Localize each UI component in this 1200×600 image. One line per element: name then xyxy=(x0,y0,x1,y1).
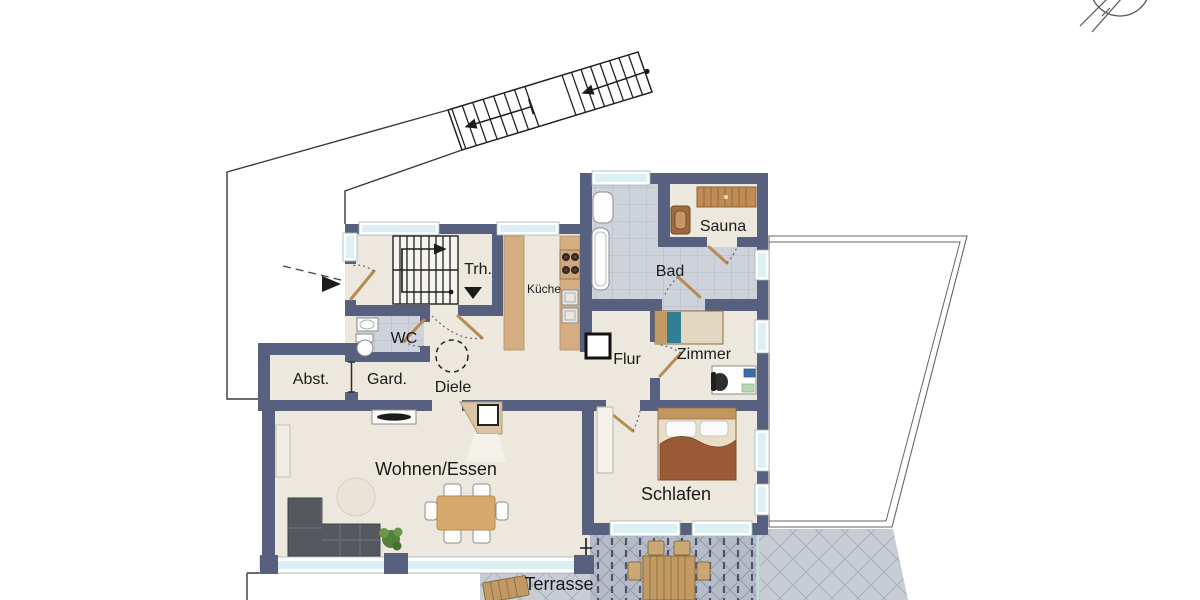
toilet xyxy=(356,334,373,356)
wc-sink xyxy=(357,318,378,331)
room-label-kueche: Küche xyxy=(527,282,561,296)
compass-fragment xyxy=(1080,0,1150,32)
room-label-wc: WC xyxy=(391,330,418,347)
window xyxy=(755,320,769,353)
wall-segment xyxy=(658,237,707,247)
window-front-post xyxy=(574,555,594,574)
wall-segment xyxy=(582,411,594,535)
terrace-chair xyxy=(674,541,690,555)
wall-segment xyxy=(258,343,270,411)
wall-segment xyxy=(658,184,670,237)
dining-table xyxy=(437,496,495,530)
window xyxy=(343,233,357,261)
window xyxy=(359,222,439,235)
boiler xyxy=(593,192,613,223)
terrace-door-post xyxy=(384,553,408,574)
roof-terrace-outline xyxy=(769,236,967,527)
room-label-terrasse: Terrasse xyxy=(524,574,593,594)
room-label-bad: Bad xyxy=(656,263,684,280)
tv-sideboard xyxy=(372,410,416,424)
room-label-diele: Diele xyxy=(435,379,472,396)
wall-segment xyxy=(345,343,358,362)
room-label-flur: Flur xyxy=(613,351,641,368)
terrace-chair xyxy=(628,562,641,580)
double-bed xyxy=(658,408,736,480)
wall-segment xyxy=(345,305,430,316)
window xyxy=(755,250,769,280)
floor-plan-page: Trh. Küche Bad Sauna WC Flur Zimmer Abst… xyxy=(0,0,1200,600)
window-front-glass xyxy=(274,561,384,569)
room-label-gard: Gard. xyxy=(367,371,407,388)
wall-segment xyxy=(345,392,358,400)
wall-segment xyxy=(420,346,430,352)
room-label-sauna: Sauna xyxy=(700,218,746,235)
stove-icon xyxy=(560,250,580,279)
entry-arrow-icon xyxy=(322,276,341,292)
wall-segment xyxy=(492,224,503,316)
window xyxy=(592,171,650,185)
window xyxy=(692,521,752,536)
window xyxy=(755,484,769,515)
external-staircase xyxy=(448,52,652,150)
kitchen-counter-left xyxy=(504,236,524,350)
round-rug xyxy=(337,478,375,516)
terrace-open-zone xyxy=(760,529,908,600)
window-front-post xyxy=(260,555,278,574)
terrace-table xyxy=(643,556,695,600)
wardrobe xyxy=(597,407,613,473)
window-front-glass xyxy=(408,561,578,569)
room-label-wohnen-essen: Wohnen/Essen xyxy=(375,459,497,479)
room-label-trh: Trh. xyxy=(464,261,492,278)
wall-segment xyxy=(258,343,358,355)
wall-segment xyxy=(262,411,275,558)
wall-segment xyxy=(258,400,432,411)
room-label-schlafen: Schlafen xyxy=(641,484,711,504)
window xyxy=(610,521,680,536)
internal-staircase xyxy=(393,236,458,304)
sauna-heater xyxy=(671,206,690,234)
wall-segment xyxy=(580,299,662,311)
window xyxy=(755,430,769,471)
shaft-symbol xyxy=(586,334,610,358)
single-bed xyxy=(655,311,723,344)
window xyxy=(497,222,559,235)
terrace-chair xyxy=(697,562,710,580)
wall-segment xyxy=(650,378,660,400)
wall-segment xyxy=(580,184,592,352)
room-label-abst: Abst. xyxy=(293,371,329,388)
floor-plan-svg: Trh. Küche Bad Sauna WC Flur Zimmer Abst… xyxy=(0,0,1200,600)
room-label-zimmer: Zimmer xyxy=(677,346,732,363)
bad-door-threshold xyxy=(662,299,705,311)
wall-segment xyxy=(345,300,356,316)
lower-terrace-outline xyxy=(247,573,262,600)
wall-cabinet xyxy=(276,425,290,477)
terrace-chair xyxy=(648,541,664,555)
sauna-bench xyxy=(697,187,756,207)
